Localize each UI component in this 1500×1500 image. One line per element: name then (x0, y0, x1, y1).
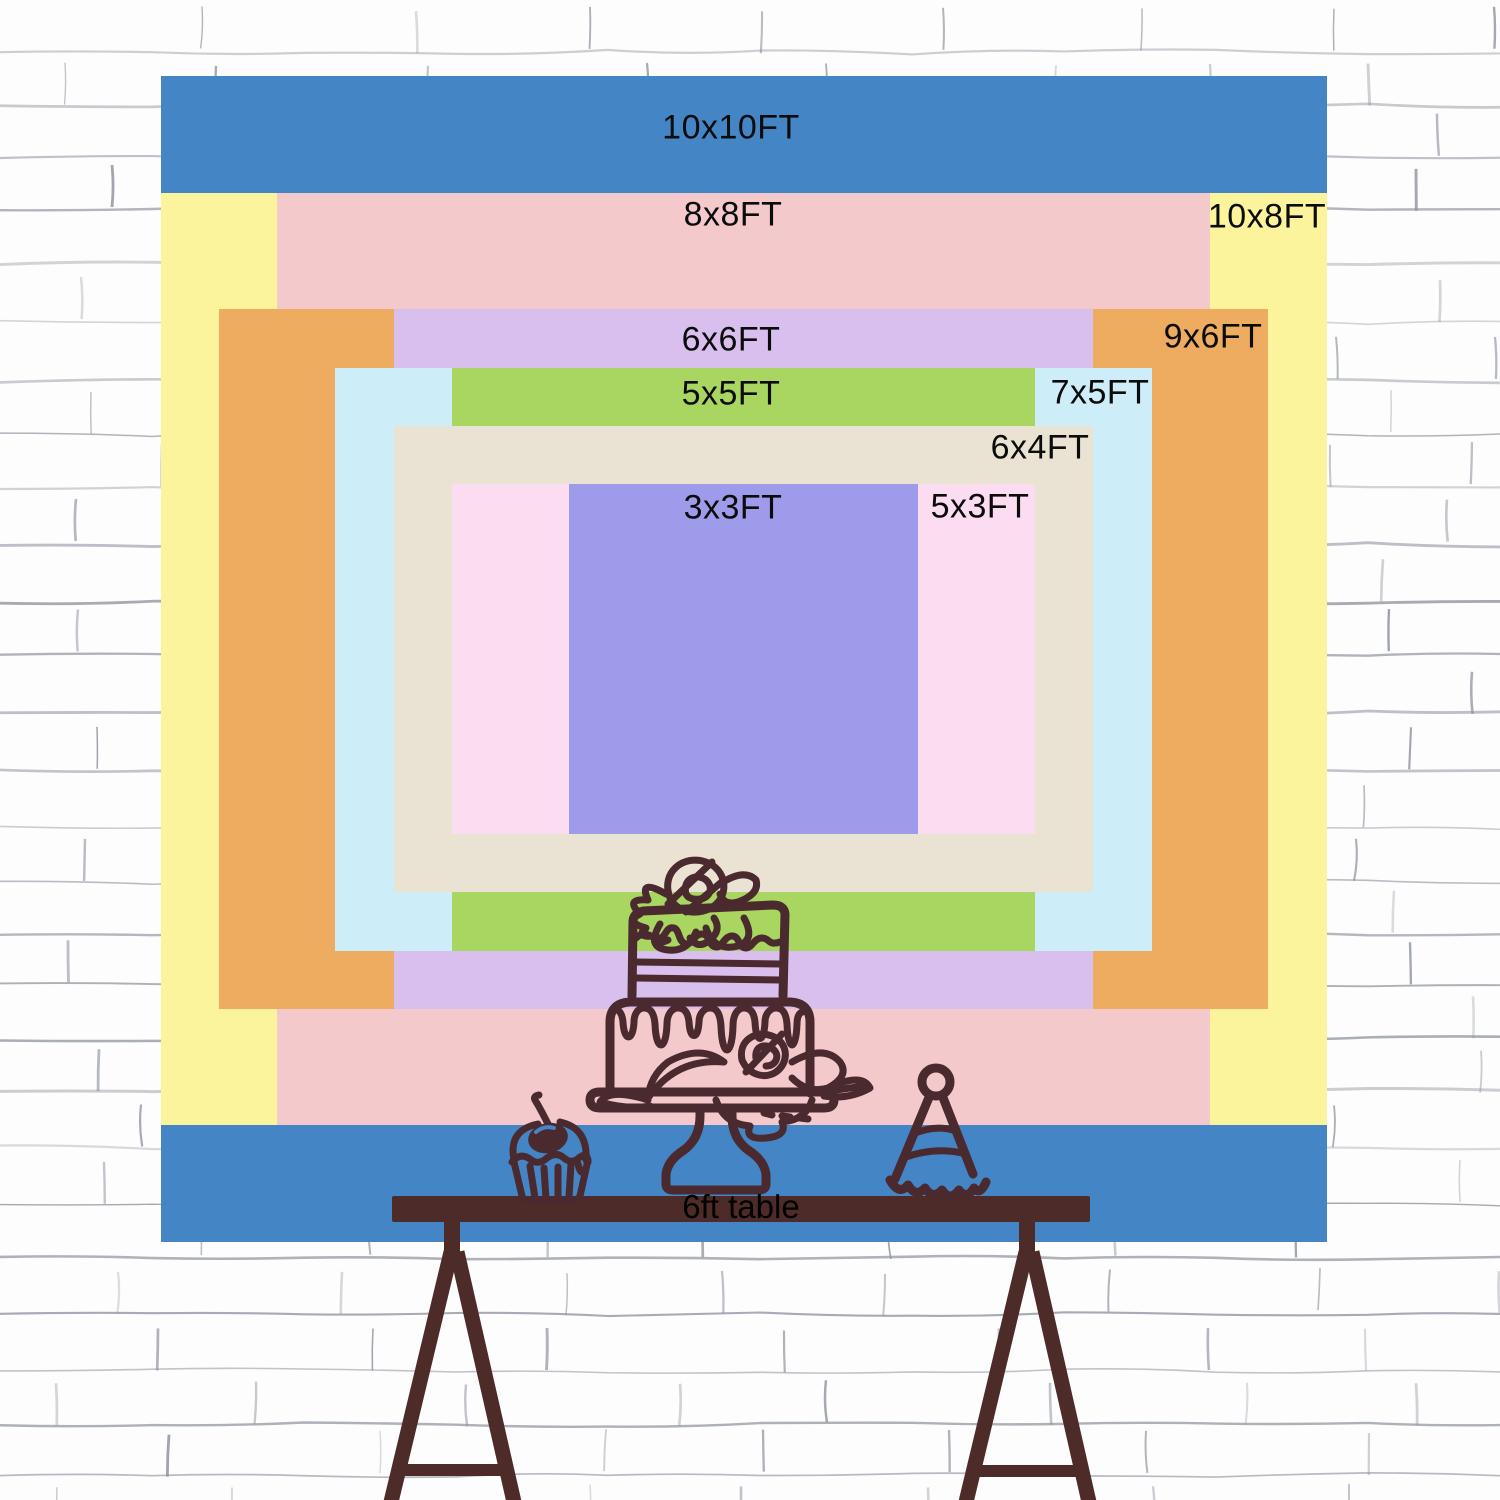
backdrop-size-chart: 10x10FT10x8FT8x8FT9x6FT6x6FT7x5FT5x5FT6x… (160, 76, 1327, 1242)
size-label-5x3ft: 5x3FT (931, 488, 1030, 527)
size-label-9x6ft: 9x6FT (1164, 318, 1263, 357)
size-layer-3x3ft (569, 484, 919, 834)
size-label-6x4ft: 6x4FT (991, 429, 1090, 468)
size-label-8x8ft: 8x8FT (684, 196, 783, 235)
size-label-6x6ft: 6x6FT (682, 321, 781, 360)
size-label-5x5ft: 5x5FT (682, 375, 781, 414)
table-label: 6ft table (392, 1193, 1090, 1221)
size-label-7x5ft: 7x5FT (1051, 374, 1150, 413)
size-label-10x10ft: 10x10FT (662, 109, 800, 148)
size-label-10x8ft: 10x8FT (1208, 198, 1326, 237)
size-label-3x3ft: 3x3FT (684, 489, 783, 528)
scene: 10x10FT10x8FT8x8FT9x6FT6x6FT7x5FT5x5FT6x… (0, 0, 1500, 1500)
